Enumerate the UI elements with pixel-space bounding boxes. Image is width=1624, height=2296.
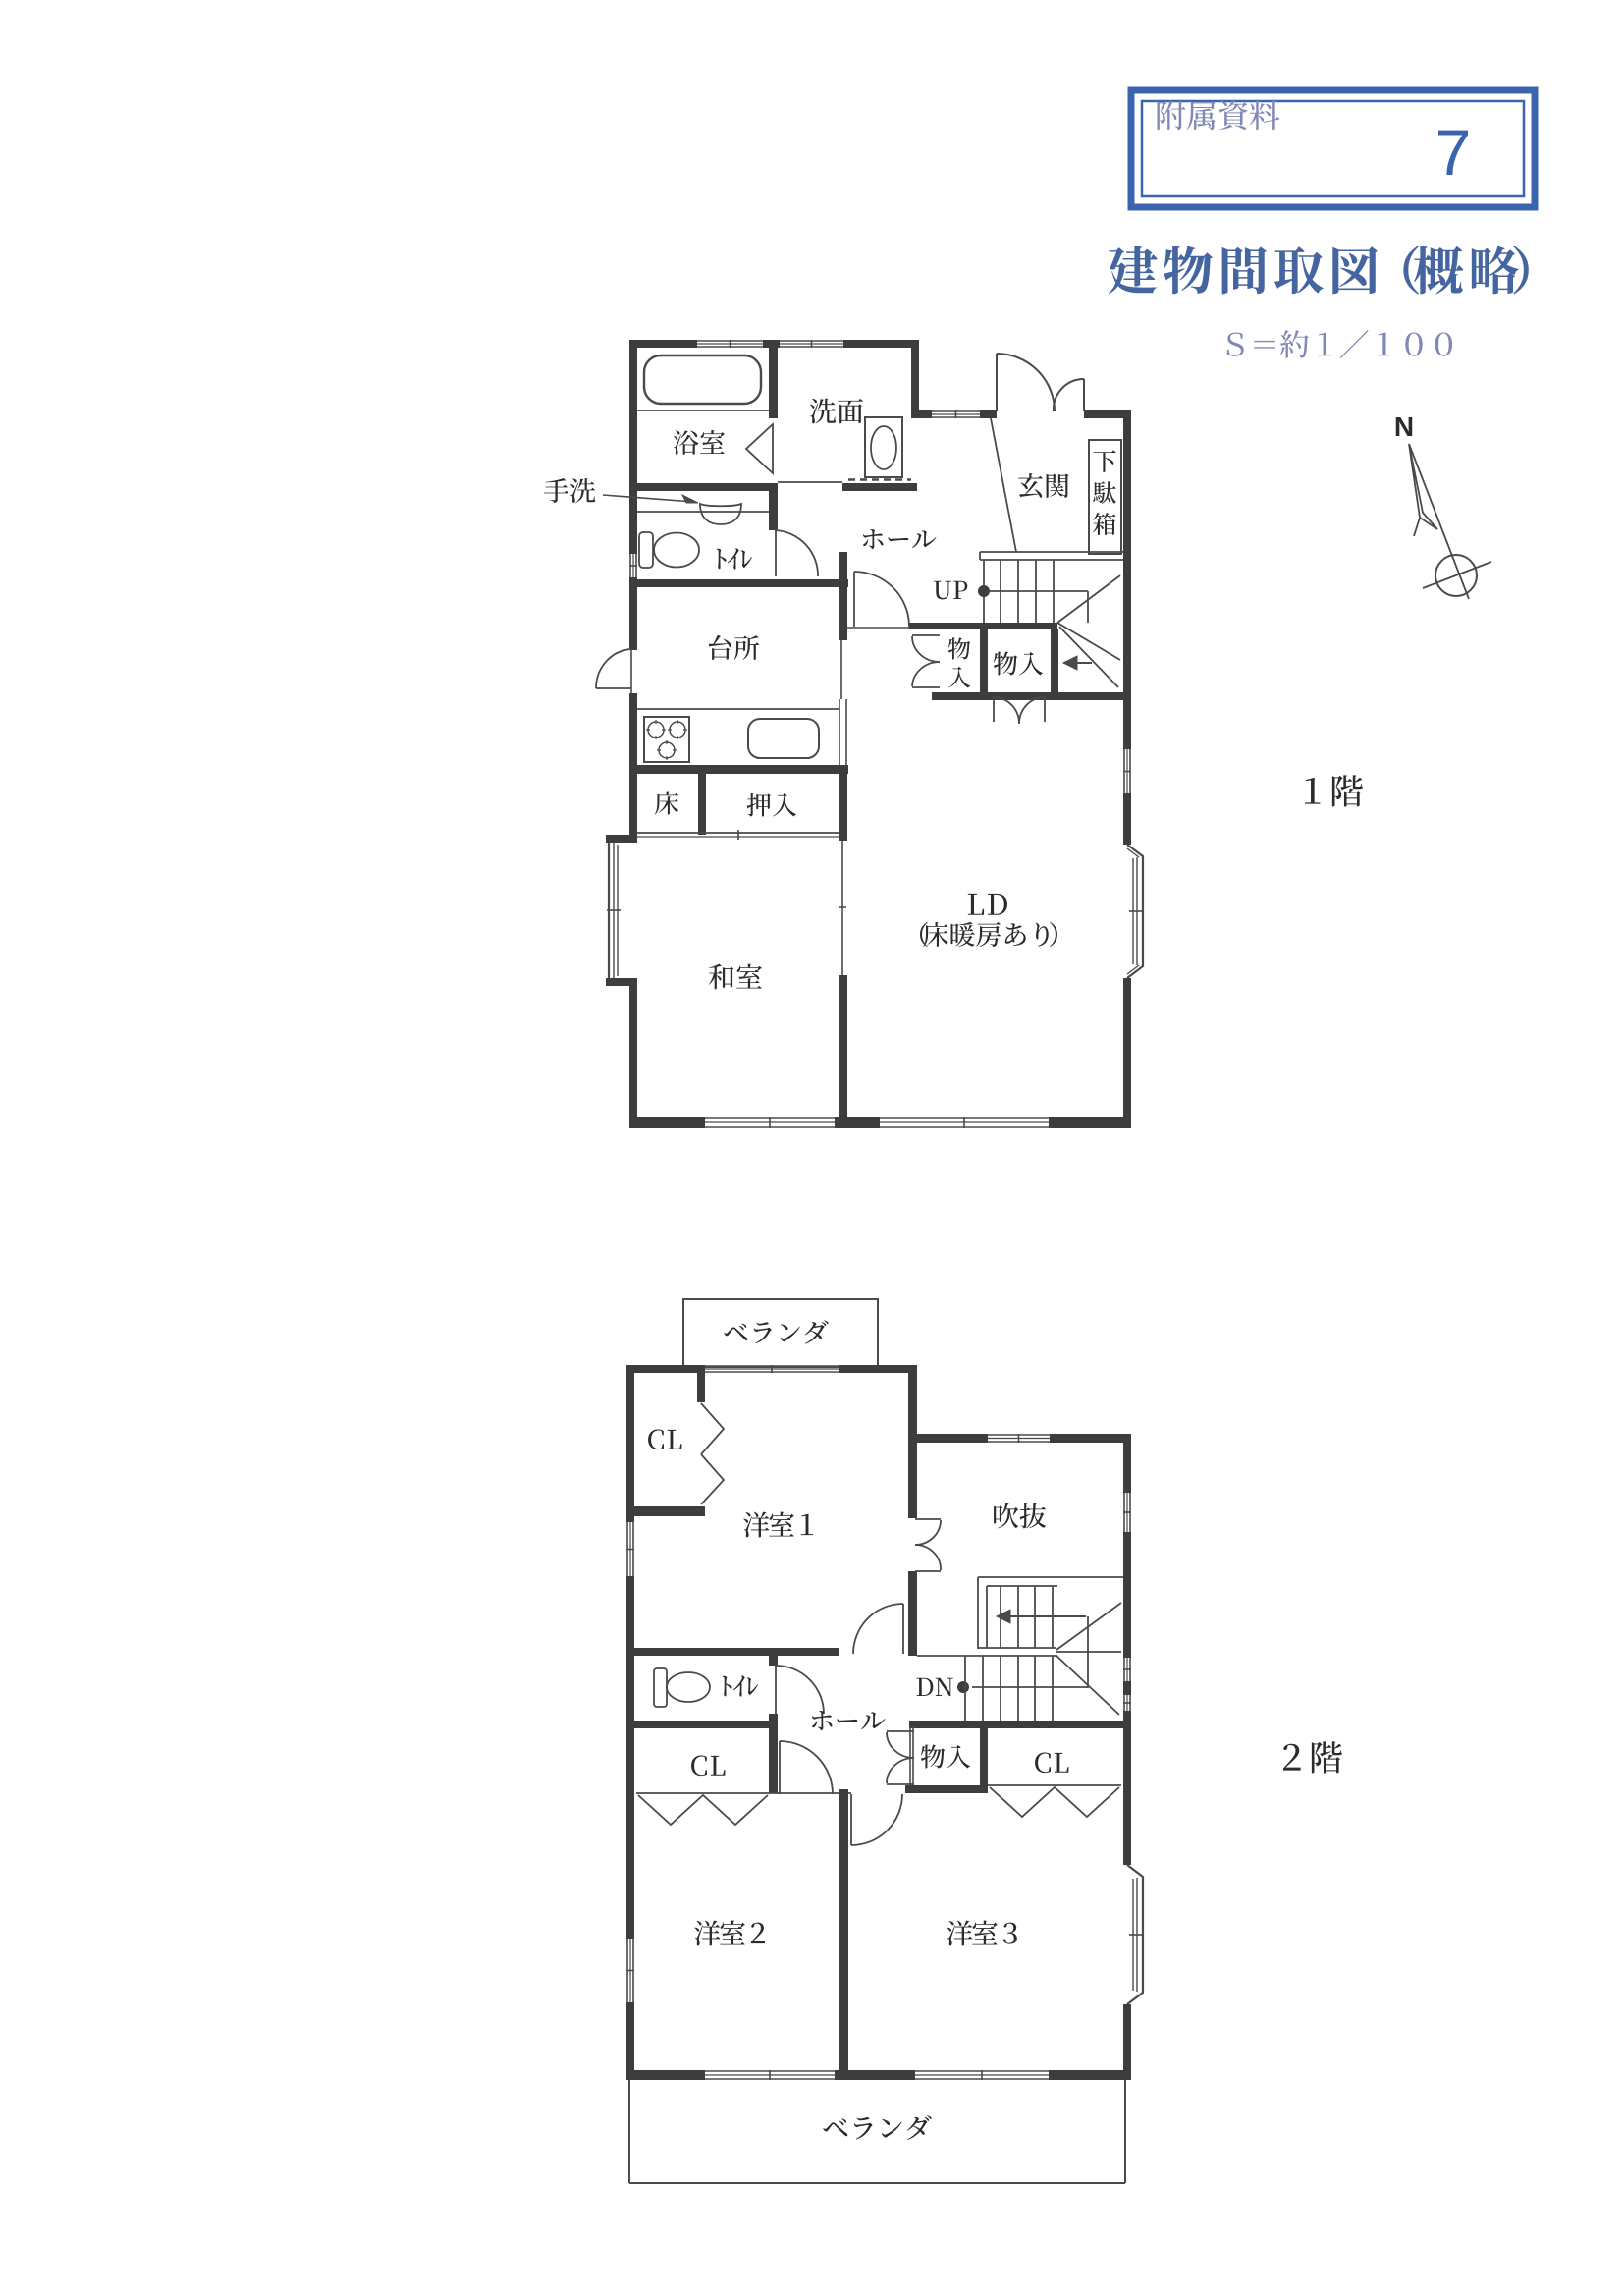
svg-text:7: 7: [1435, 116, 1472, 189]
svg-text:N: N: [1394, 411, 1414, 442]
